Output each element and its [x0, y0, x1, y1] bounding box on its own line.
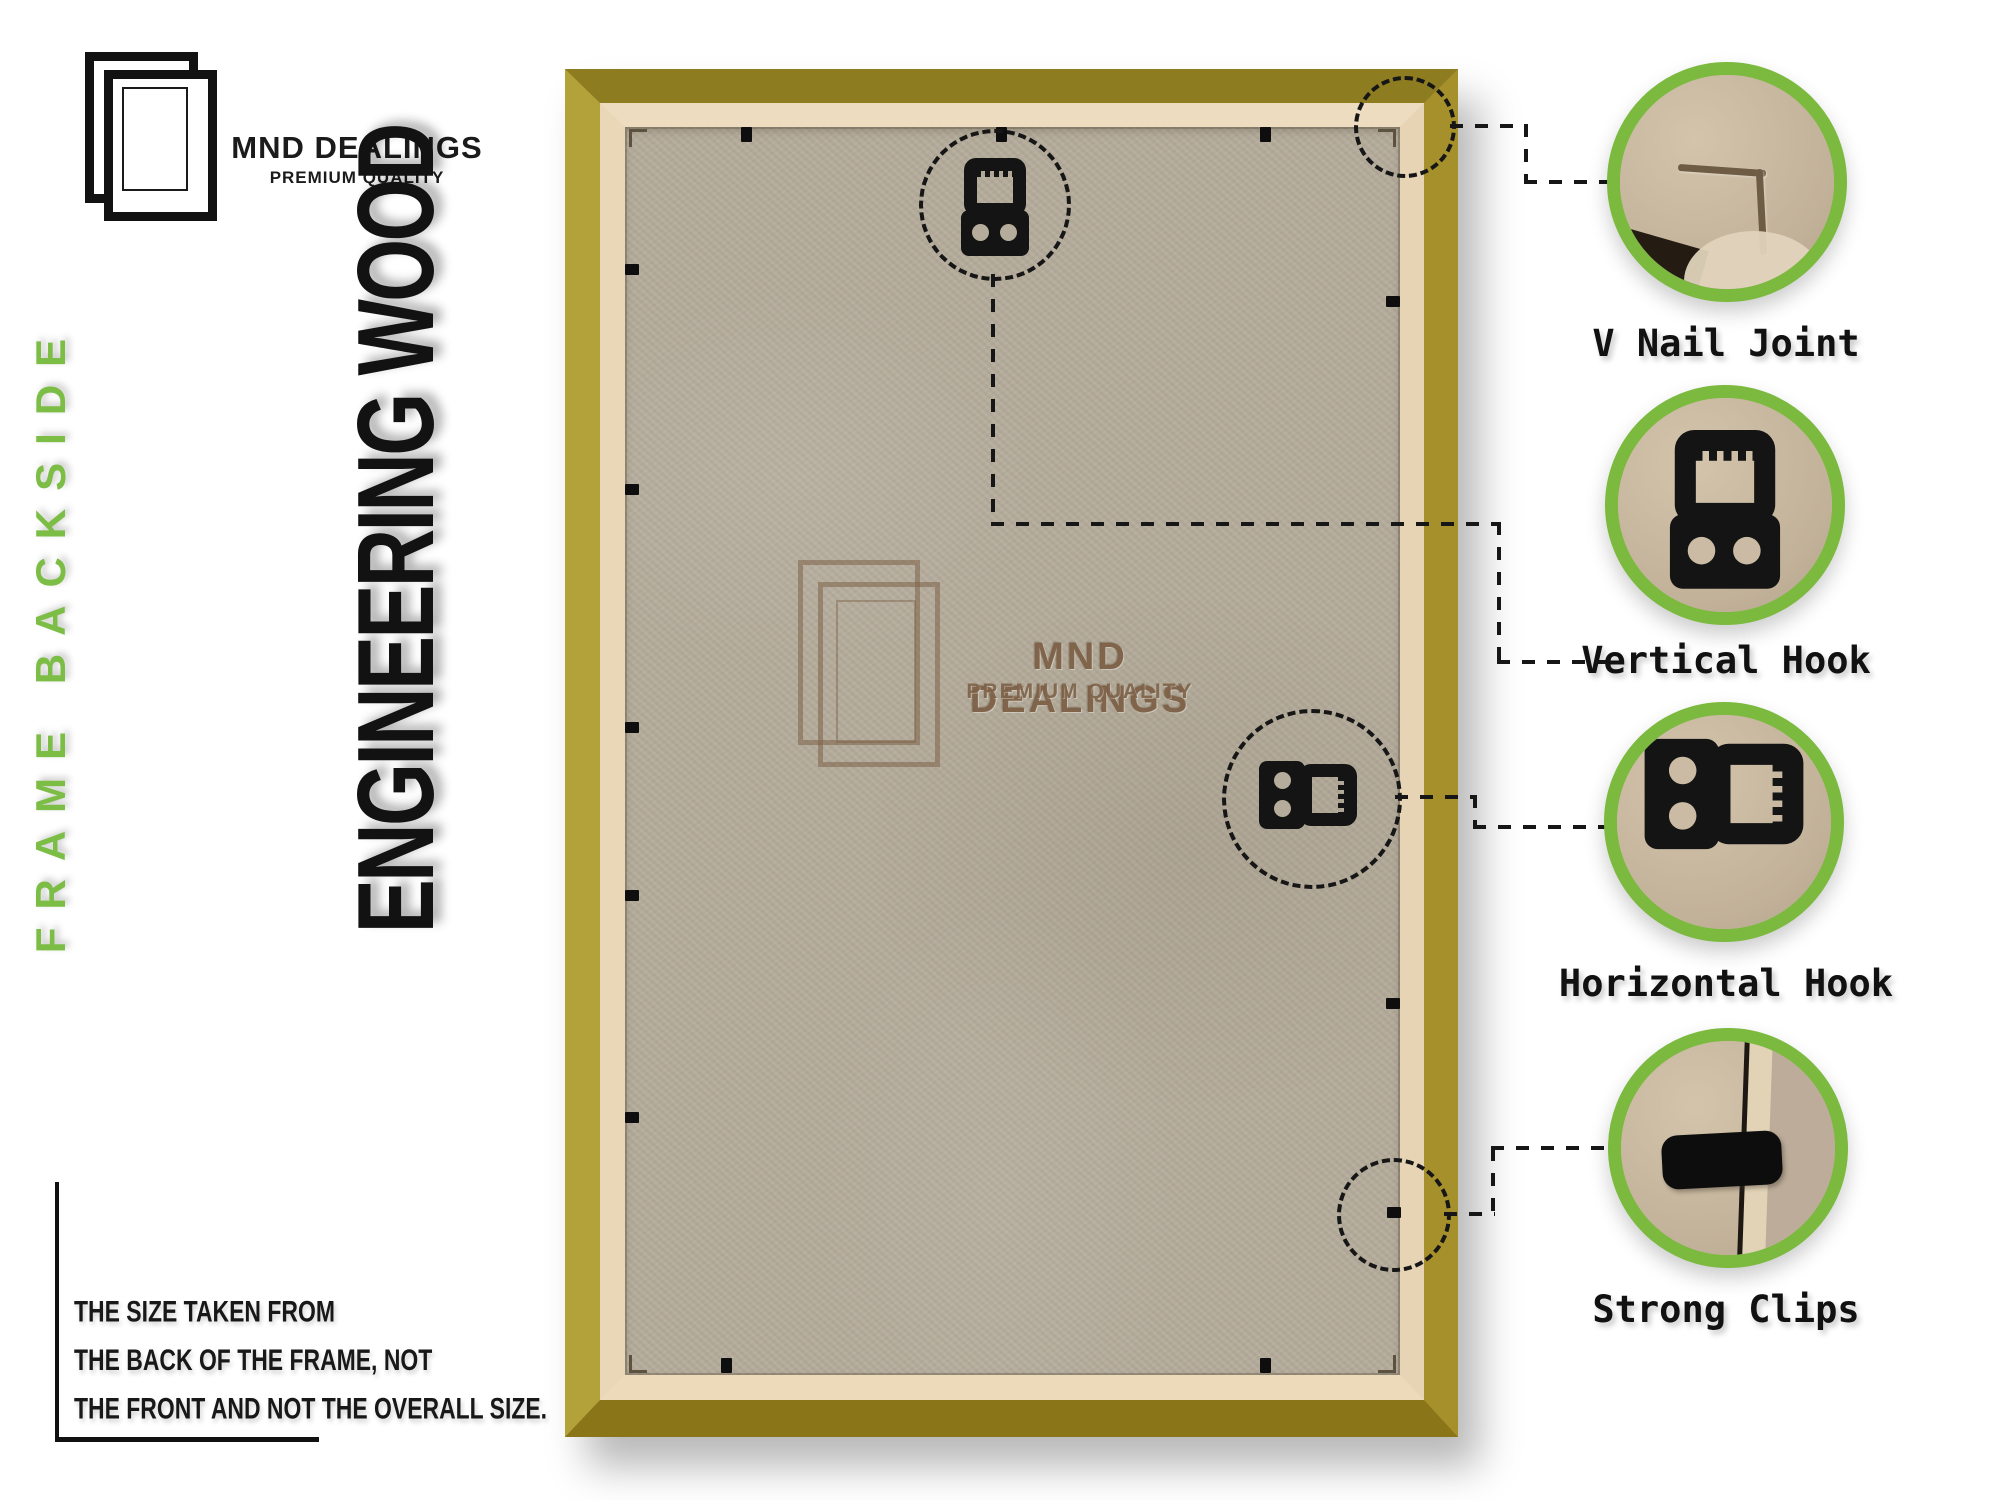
vertical-hook-hardware-large: [1673, 430, 1777, 589]
clip-mark: [741, 127, 752, 142]
hook-hole: [1669, 802, 1697, 830]
mdf-highlight: [1684, 231, 1824, 302]
size-note-line3: THE FRONT AND NOT THE OVERALL SIZE.: [74, 1385, 547, 1434]
dashed-circle-horizontal-hook: [1222, 709, 1402, 889]
watermark-tagline: PREMIUM QUALITY: [930, 680, 1230, 704]
dashed-circle-strong-clip: [1337, 1158, 1451, 1272]
callout-label-strong-clips: Strong Clips: [1516, 1288, 1936, 1331]
watermark-name: MND DEALINGS: [930, 636, 1230, 722]
leader-line: [1450, 124, 1528, 128]
hook-sawtooth: [1773, 763, 1784, 825]
clip-mark: [625, 484, 639, 495]
leader-line: [991, 522, 1501, 526]
clip-mark: [721, 1358, 732, 1373]
hook-plate: [1670, 514, 1780, 589]
callout-label-v-nail-joint: V Nail Joint: [1516, 322, 1936, 365]
hook-hole: [1688, 537, 1716, 565]
hook-plate: [1645, 739, 1720, 849]
hook-ring: [1709, 744, 1803, 844]
leader-line: [1395, 795, 1477, 799]
callout-strong-clips: [1608, 1028, 1848, 1268]
clip-mark: [625, 1112, 639, 1123]
corner-mark-bottom-right: [1378, 1355, 1396, 1373]
v-nail-closeup: [1620, 75, 1834, 289]
strong-clip-hardware: [1660, 1130, 1783, 1190]
logo-frame-inner: [122, 87, 188, 191]
size-note-line1: THE SIZE TAKEN FROM: [74, 1288, 547, 1337]
strong-clip-closeup: [1621, 1041, 1835, 1255]
clip-mark: [625, 264, 639, 275]
clip-mark: [1260, 127, 1271, 142]
leader-line: [1524, 180, 1610, 184]
clip-mark: [1386, 998, 1400, 1009]
vertical-hook-closeup: [1618, 398, 1832, 612]
engineering-wood-label: ENGINEERING WOOD: [335, 247, 465, 933]
leader-line: [1473, 825, 1606, 829]
leader-line: [1524, 124, 1528, 184]
callout-v-nail-joint: [1607, 62, 1847, 302]
clip-mark: [625, 890, 639, 901]
leader-line: [1444, 1212, 1495, 1216]
callout-vertical-hook: [1605, 385, 1845, 625]
corner-mark-bottom-left: [629, 1355, 647, 1373]
size-note-line2: THE BACK OF THE FRAME, NOT: [74, 1337, 547, 1386]
hook-ring: [1675, 430, 1775, 524]
clip-mark: [625, 722, 639, 733]
note-vertical-rule: [55, 1182, 59, 1438]
clip-mark: [1386, 296, 1400, 307]
corner-mark-top-left: [629, 129, 647, 147]
callout-horizontal-hook: [1604, 702, 1844, 942]
dashed-circle-v-nail: [1354, 76, 1456, 178]
leader-line: [1473, 795, 1477, 829]
horizontal-hook-closeup: [1617, 715, 1831, 929]
product-infographic: MND DEALINGS PREMIUM QUALITY FRAME BACKS…: [0, 0, 2000, 1500]
leader-line: [1491, 1148, 1495, 1216]
dashed-circle-vertical-hook: [919, 129, 1071, 281]
v-nail-groove-horizontal: [1678, 164, 1766, 177]
callout-label-horizontal-hook: Horizontal Hook: [1516, 962, 1936, 1005]
leader-line: [991, 274, 995, 526]
size-note: THE SIZE TAKEN FROM THE BACK OF THE FRAM…: [74, 1288, 547, 1434]
watermark-frame-inner: [836, 600, 916, 743]
callout-label-vertical-hook: Vertical Hook: [1516, 639, 1936, 682]
hook-sawtooth: [1694, 449, 1756, 460]
note-horizontal-rule: [55, 1437, 319, 1442]
hook-hole: [1733, 537, 1761, 565]
horizontal-hook-hardware-large: [1645, 742, 1804, 846]
clip-mark: [1260, 1358, 1271, 1373]
hook-hole: [1669, 757, 1697, 785]
leader-line: [1491, 1146, 1612, 1150]
leader-line: [1497, 522, 1501, 664]
frame-backside-label: FRAME BACKSIDE: [27, 317, 87, 957]
